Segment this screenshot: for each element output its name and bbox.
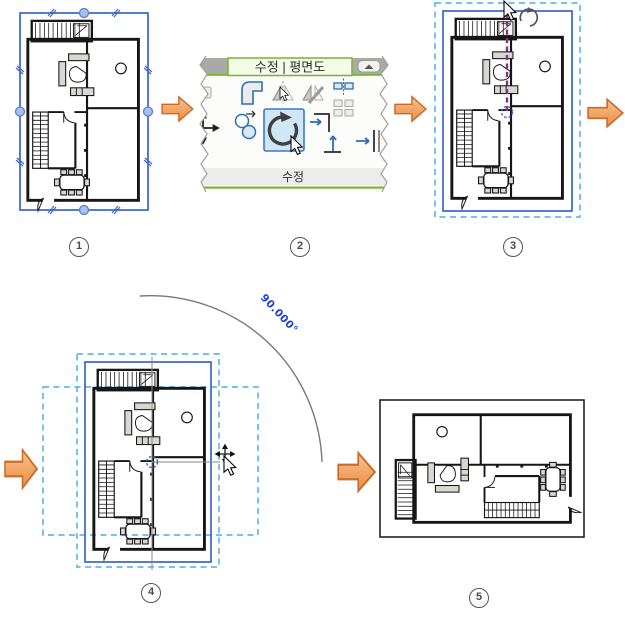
- step5-result-plan: [378, 398, 588, 540]
- flow-arrow-icon: [3, 447, 38, 491]
- step-badge-2: 2: [290, 237, 310, 257]
- step-badge-4: 4: [141, 583, 161, 603]
- rotate-drag-cursor: [216, 445, 236, 475]
- tab-modify-floorplan[interactable]: 수정 | 평면도: [228, 58, 352, 76]
- rotate-pointer-icon: [520, 7, 537, 26]
- view-border: [380, 400, 584, 537]
- svg-text:수정 | 평면도: 수정 | 평면도: [255, 60, 325, 75]
- step-badge-1: 1: [69, 237, 89, 257]
- flow-arrow-icon: [160, 95, 194, 123]
- step-badge-3: 3: [503, 237, 523, 257]
- step3-place-rotation-axis: [428, 0, 584, 222]
- rotation-arc: [140, 296, 322, 462]
- step-badge-5: 5: [469, 588, 489, 608]
- rotate-icon[interactable]: [264, 109, 304, 154]
- step2-ribbon-panel: 수정 | 평면도: [196, 56, 392, 192]
- flow-arrow-icon: [393, 94, 427, 124]
- flow-arrow-icon: [336, 450, 376, 494]
- step1-selected-plan: [14, 6, 154, 218]
- flow-arrow-icon: [586, 96, 624, 130]
- panel-accent-line: [198, 187, 390, 189]
- panel-label: 수정: [282, 170, 304, 184]
- collapse-ribbon-button[interactable]: [358, 61, 380, 73]
- tutorial-figure: 수정 | 평면도: [0, 0, 625, 618]
